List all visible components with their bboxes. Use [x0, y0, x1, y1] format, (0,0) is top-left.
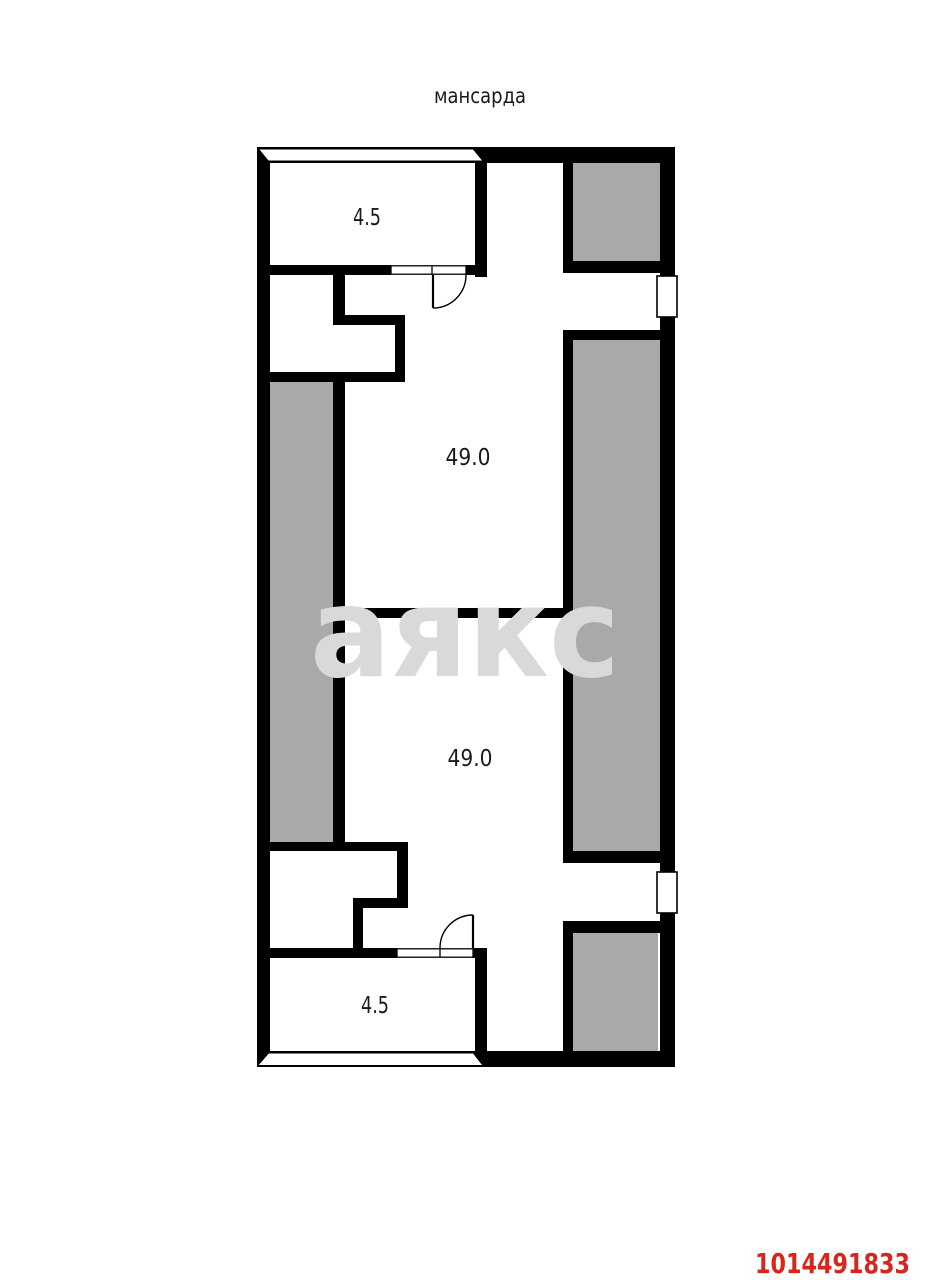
room-area-label-bottom-small: 4.5 — [361, 993, 389, 1019]
room-area-label-lower-main: 49.0 — [448, 746, 493, 772]
window-symbol-top — [657, 276, 677, 317]
plan-title: мансарда — [434, 84, 526, 108]
shaded-area-top-right — [573, 162, 660, 261]
shaded-area-bottom-right — [573, 933, 658, 1051]
listing-id: 1014491833 — [755, 1247, 910, 1280]
room-area-label-top-small: 4.5 — [353, 205, 381, 231]
window-symbol-bottom — [657, 872, 677, 913]
floor-plan-page: мансарда — [0, 0, 933, 1280]
agency-watermark: аякс — [310, 561, 620, 706]
window-band-top — [260, 150, 483, 161]
floor-plan: мансарда — [0, 0, 933, 1280]
window-band-bottom — [259, 1054, 482, 1066]
room-area-label-upper-main: 49.0 — [446, 445, 491, 471]
